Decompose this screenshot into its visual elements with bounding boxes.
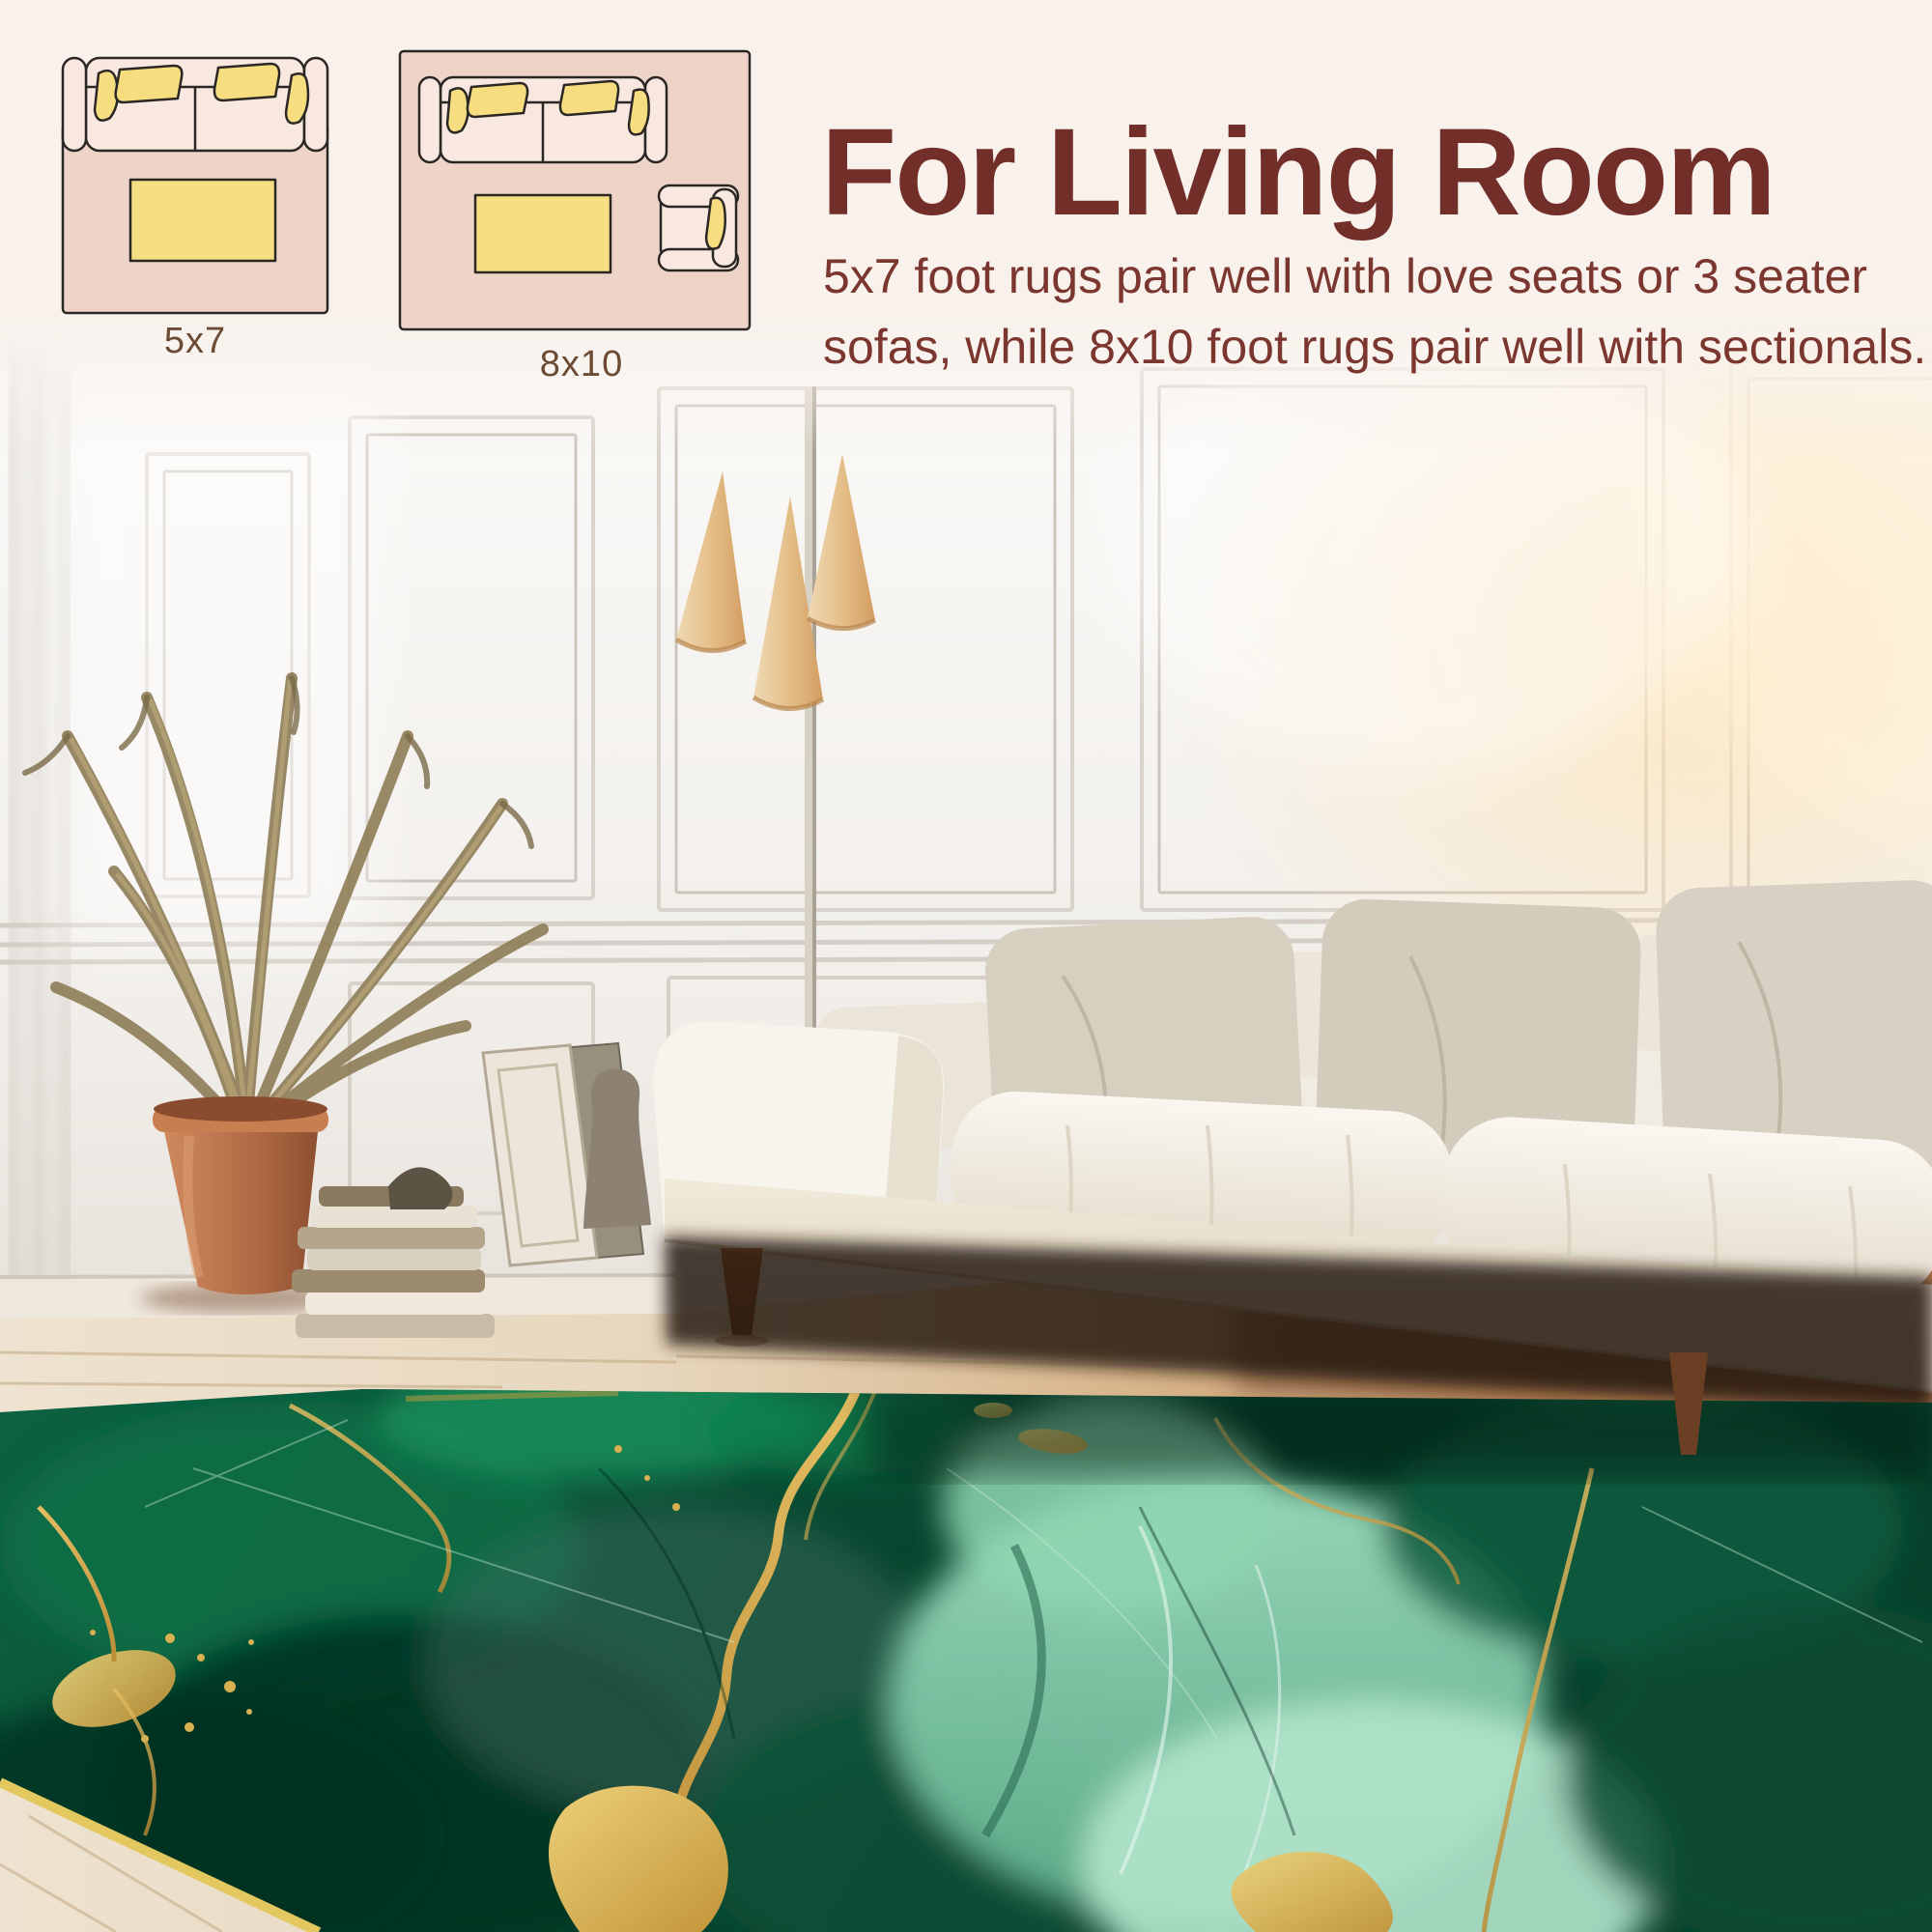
living-room-photo: [0, 319, 1932, 1932]
page-title: For Living Room: [821, 108, 1913, 238]
diagram-coffee-table: [130, 180, 275, 261]
rug-product-infographic: { "size_guide": { "heading": "For Living…: [0, 0, 1932, 1932]
green-gold-marble-rug: [0, 1360, 1932, 1932]
diagram-armchair: [659, 185, 738, 270]
rug-with-loveseat-top-view-icon: [39, 27, 348, 327]
diagram-coffee-table: [475, 195, 611, 272]
diagram-sofa: [419, 77, 667, 162]
description-line-2: sofas, while 8x10 foot rugs pair well wi…: [823, 312, 1932, 383]
description-line-1: 5x7 foot rugs pair well with love seats …: [823, 241, 1932, 312]
rug-with-sofa-and-armchair-top-view-icon: [386, 39, 763, 343]
rug-size-label-8x10: 8x10: [540, 344, 623, 385]
size-guide-description: 5x7 foot rugs pair well with love seats …: [823, 241, 1932, 382]
diagram-loveseat: [63, 58, 327, 151]
rug-size-label-5x7: 5x7: [164, 321, 226, 362]
